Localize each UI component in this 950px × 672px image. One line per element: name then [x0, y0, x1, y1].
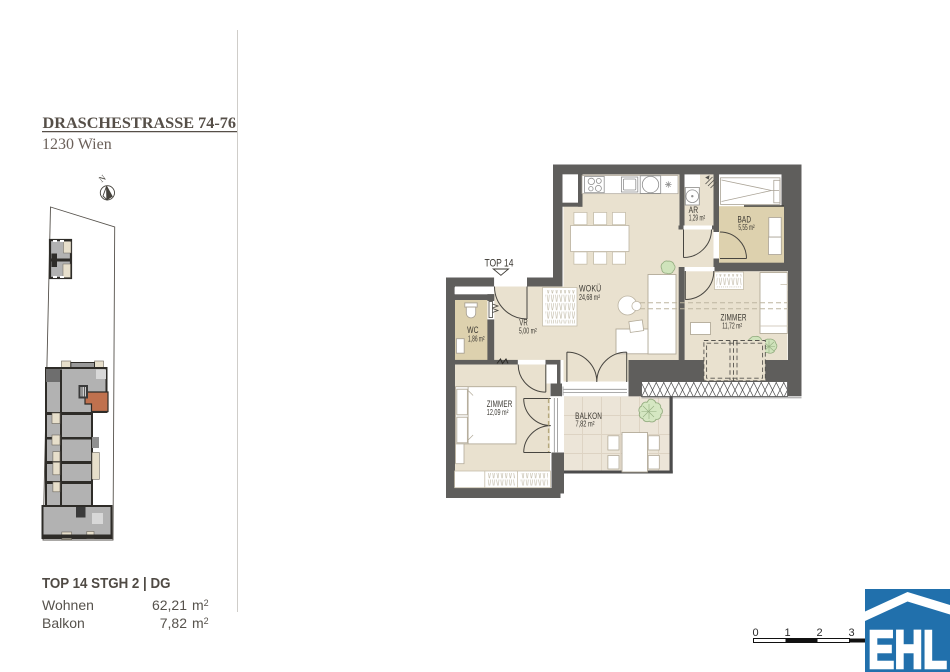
svg-text:1230 Wien: 1230 Wien	[42, 136, 112, 153]
svg-text:2: 2	[816, 627, 822, 639]
svg-text:5,00 m²: 5,00 m²	[519, 327, 537, 336]
svg-text:1,29 m²: 1,29 m²	[689, 213, 706, 222]
svg-text:1: 1	[784, 627, 790, 639]
svg-text:3: 3	[848, 627, 854, 639]
svg-text:WOKÜ: WOKÜ	[579, 283, 601, 293]
svg-text:7,82 m²: 7,82 m²	[576, 420, 595, 429]
svg-text:0: 0	[752, 627, 758, 639]
svg-text:TOP 14: TOP 14	[484, 258, 513, 270]
svg-text:7,82: 7,82	[160, 615, 187, 631]
svg-text:12,09 m²: 12,09 m²	[487, 408, 509, 417]
svg-text:Balkon: Balkon	[42, 615, 85, 631]
svg-text:24,68 m²: 24,68 m²	[579, 293, 600, 302]
svg-text:TOP 14 STGH 2 | DG: TOP 14 STGH 2 | DG	[42, 576, 171, 592]
svg-text:62,21: 62,21	[152, 597, 187, 613]
svg-text:11,72 m²: 11,72 m²	[722, 322, 742, 331]
svg-text:1,86 m²: 1,86 m²	[468, 334, 485, 343]
svg-text:DRASCHESTRASSE 74-76: DRASCHESTRASSE 74-76	[43, 115, 237, 132]
svg-text:EHL: EHL	[868, 620, 947, 672]
svg-text:5,55 m²: 5,55 m²	[738, 223, 755, 232]
svg-text:Wohnen: Wohnen	[42, 597, 94, 613]
